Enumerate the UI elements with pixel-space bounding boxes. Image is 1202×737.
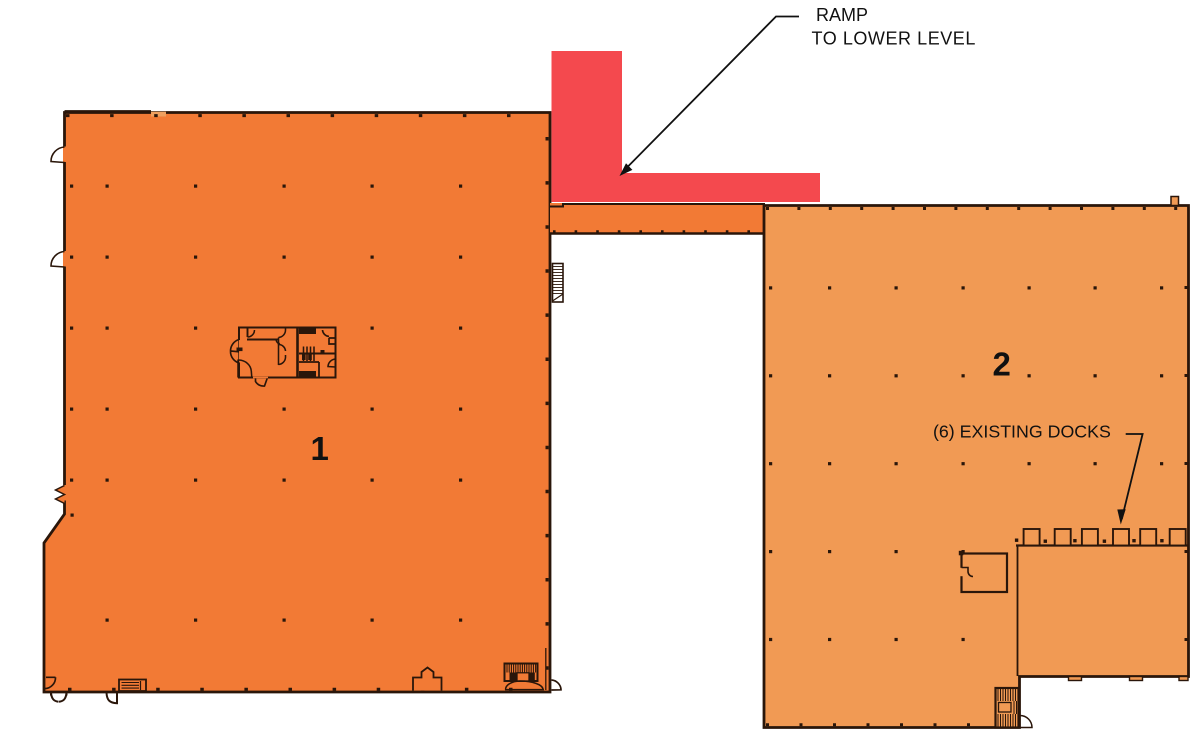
svg-text:2: 2 (993, 346, 1011, 383)
svg-text:1: 1 (311, 430, 329, 467)
svg-text:RAMP: RAMP (816, 5, 868, 25)
svg-text:TO LOWER LEVEL: TO LOWER LEVEL (812, 29, 976, 49)
svg-text:(6) EXISTING DOCKS: (6) EXISTING DOCKS (933, 422, 1111, 442)
